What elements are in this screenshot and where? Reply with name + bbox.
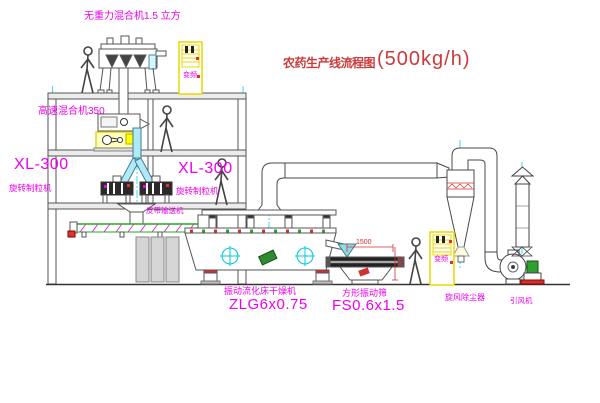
exhaust-duct	[256, 163, 449, 213]
fluid-bed-dryer	[185, 210, 344, 284]
dimension-screen-width: 1500	[356, 239, 372, 246]
label-high-speed-mixer: 高速混合机350	[38, 107, 105, 117]
person-ground	[409, 238, 422, 284]
title-text: 农药生产线流程图	[283, 54, 375, 71]
label-dryer-name: 振动流化床干燥机	[224, 287, 296, 296]
control-cabinet-top	[179, 42, 202, 94]
label-granulator-right-name: 旋转制粒机	[176, 187, 219, 196]
induced-draft-fan	[485, 250, 544, 284]
person-top-floor	[81, 47, 94, 93]
flow-diagram-canvas: 农药生产线流程图 (500kg/h) 无重力混合机1.5 立方 高速混合机350…	[0, 0, 600, 403]
label-belt-conveyor: 皮带输送机	[146, 207, 184, 215]
label-dryer-model: ZLG6x0.75	[229, 297, 308, 312]
label-cabinet-top-text: 变频	[183, 72, 197, 79]
gravity-free-mixer	[98, 36, 166, 115]
label-granulator-left-name: 旋转制粒机	[9, 184, 52, 193]
granulators	[101, 176, 172, 226]
exhaust-stack	[512, 167, 533, 256]
vibrating-screen	[326, 244, 404, 284]
label-cabinet-bottom-text: 变频	[434, 256, 448, 263]
diagram-title: 农药生产线流程图 (500kg/h)	[283, 48, 471, 71]
label-granulator-left-model: XL-300	[14, 157, 69, 173]
label-gravity-free-mixer: 无重力混合机1.5 立方	[84, 12, 181, 22]
title-capacity: (500kg/h)	[377, 48, 471, 71]
label-fan: 引风机	[510, 297, 533, 305]
label-cyclone: 旋风除尘器	[445, 294, 485, 302]
dimension-screen-height: 540	[396, 256, 403, 268]
person-second-floor	[160, 106, 173, 152]
label-granulator-right-model: XL-300	[178, 161, 233, 177]
label-screen-model: FS0.6x1.5	[332, 298, 405, 313]
